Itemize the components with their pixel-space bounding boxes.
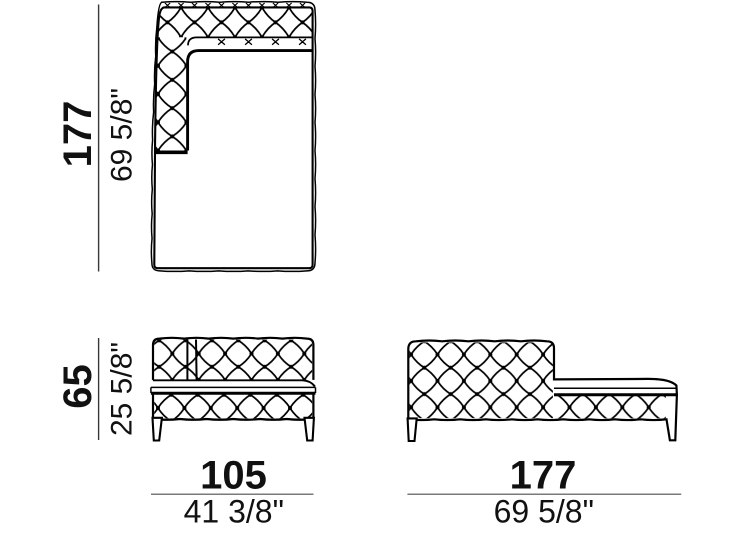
- svg-text:69 5/8": 69 5/8": [106, 88, 139, 182]
- svg-text:177: 177: [56, 101, 100, 168]
- svg-text:69 5/8": 69 5/8": [494, 493, 594, 529]
- svg-text:105: 105: [200, 453, 267, 497]
- svg-text:25 5/8": 25 5/8": [106, 342, 139, 436]
- svg-text:65: 65: [56, 364, 100, 409]
- svg-text:177: 177: [510, 453, 577, 497]
- svg-text:41 3/8": 41 3/8": [184, 493, 284, 529]
